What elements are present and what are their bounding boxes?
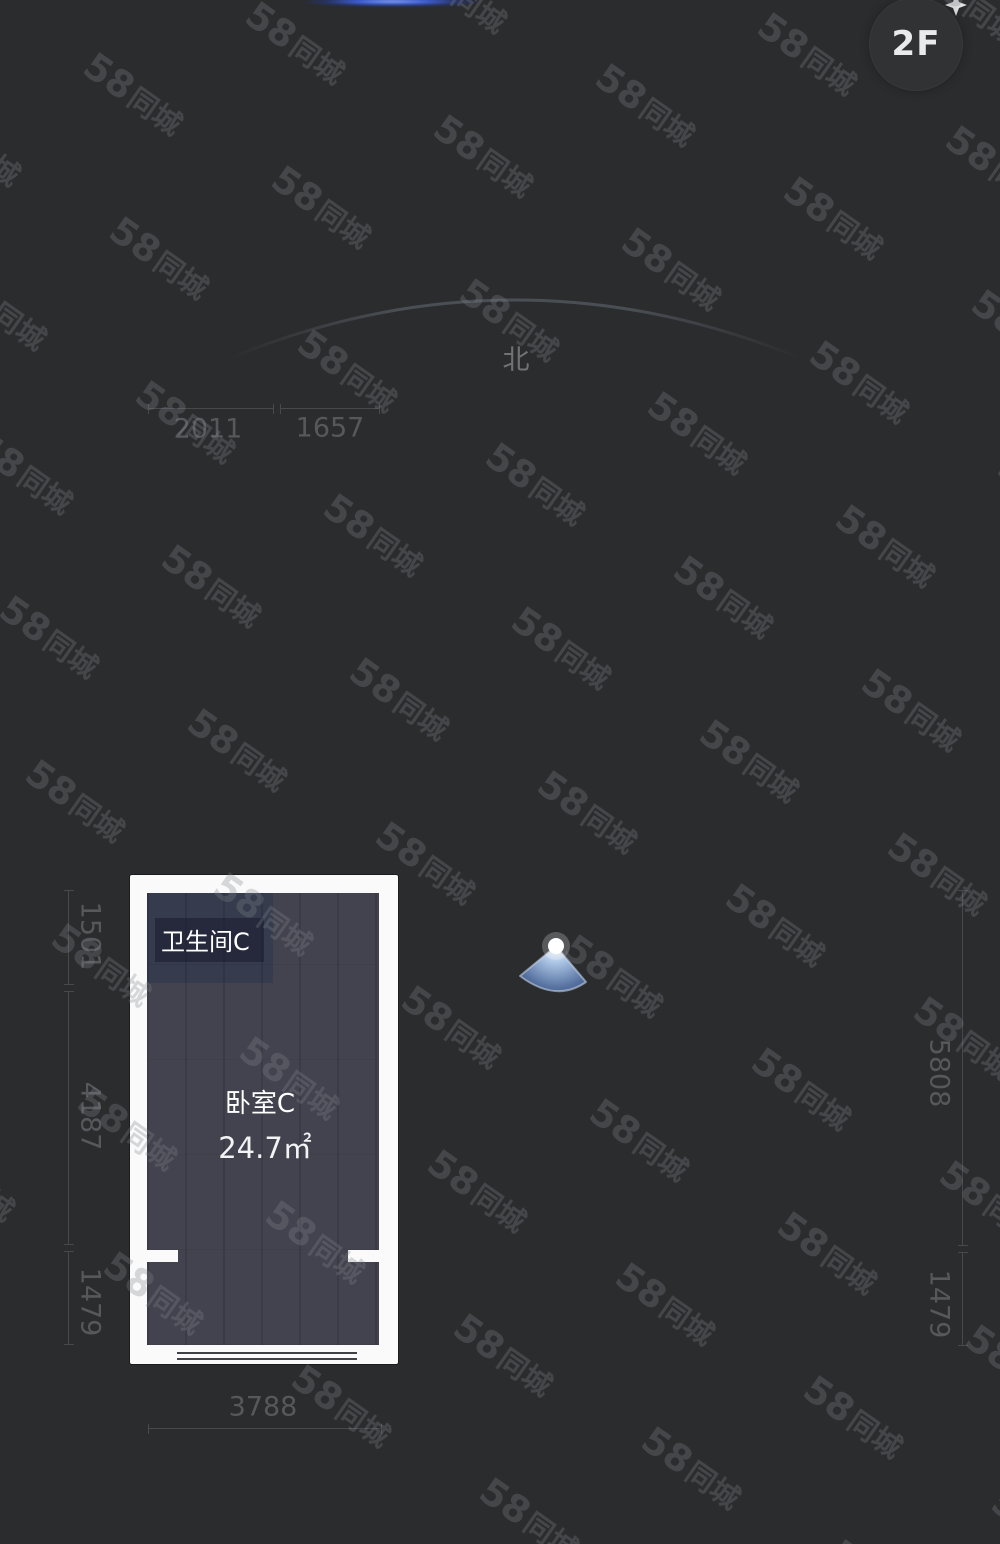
room-floor: 卫生间C 卧室C 24.7㎡ xyxy=(147,893,379,1345)
watermark-text: 58同城 xyxy=(0,590,107,685)
watermark-text: 58同城 xyxy=(965,284,1000,379)
watermark-text: 58同城 xyxy=(615,222,728,317)
dimension-label: 1479 xyxy=(75,1268,106,1337)
watermark-text: 58同城 xyxy=(609,1257,722,1352)
watermark-text: 58同城 xyxy=(181,703,294,798)
room-area-value: 24.7㎡ xyxy=(218,1125,312,1167)
watermark-text: 58同城 xyxy=(505,601,618,696)
dimension-line xyxy=(148,1428,382,1429)
dimension-line xyxy=(962,890,963,1246)
watermark-text: 58同城 xyxy=(531,765,644,860)
watermark-text: 58同城 xyxy=(881,827,994,922)
dimension-line xyxy=(962,1252,963,1346)
watermark-text: 58同城 xyxy=(933,1155,1000,1250)
dimension-label: 4187 xyxy=(75,1082,106,1151)
watermark-text: 58同城 xyxy=(317,488,430,583)
dimension-label: 2011 xyxy=(174,414,243,445)
dimension-line xyxy=(148,408,274,409)
dimension-line xyxy=(280,408,380,409)
watermark-text: 58同城 xyxy=(0,426,81,521)
watermark-text: 58同城 xyxy=(343,652,456,747)
window-line xyxy=(177,1352,357,1354)
watermark-text: 58同城 xyxy=(641,386,754,481)
watermark-text: 58同城 xyxy=(0,98,29,193)
watermark-text: 58同城 xyxy=(557,929,670,1024)
watermark-text: 58同城 xyxy=(803,335,916,430)
watermark-text: 58同城 xyxy=(155,539,268,634)
watermark-text: 58同城 xyxy=(991,448,1000,543)
watermark-text: 58同城 xyxy=(239,0,352,90)
watermark-text: 58同城 xyxy=(745,1042,858,1137)
room-label-bathroom: 卫生间C xyxy=(155,918,264,962)
watermark-text: 58同城 xyxy=(19,754,132,849)
watermark-text: 58同城 xyxy=(823,1534,936,1544)
watermark-text: 58同城 xyxy=(771,1206,884,1301)
watermark-text: 58同城 xyxy=(751,7,864,102)
floorplan-viewer-screen: 2F 北 2011 1657 1501 4187 1479 5808 1479 … xyxy=(0,0,1000,1544)
north-label: 北 xyxy=(503,338,530,377)
watermark-text: 58同城 xyxy=(0,262,55,357)
dimension-label: 1479 xyxy=(924,1270,955,1339)
watermark-text: 58同城 xyxy=(291,324,404,419)
dimension-line xyxy=(68,1251,69,1345)
watermark-text: 58同城 xyxy=(427,109,540,204)
camera-cone-icon xyxy=(520,932,586,991)
watermark-text: 58同城 xyxy=(0,0,3,28)
room-bedroom-c[interactable]: 卫生间C 卧室C 24.7㎡ xyxy=(130,875,398,1364)
floor-badge-label: 2F xyxy=(892,24,941,64)
watermark-text: 58同城 xyxy=(939,120,1000,215)
watermark-text: 58同城 xyxy=(829,499,942,594)
dimension-label: 3788 xyxy=(229,1392,298,1423)
dimension-line xyxy=(68,890,69,985)
watermark-text: 58同城 xyxy=(479,437,592,532)
watermark-text: 58同城 xyxy=(985,1483,1000,1544)
watermark-text: 58同城 xyxy=(583,1093,696,1188)
watermark-text: 58同城 xyxy=(693,714,806,809)
watermark-text: 58同城 xyxy=(855,663,968,758)
floor-badge-2f[interactable]: 2F xyxy=(869,0,963,91)
watermark-text: 58同城 xyxy=(589,58,702,153)
watermark-text: 58同城 xyxy=(667,550,780,645)
watermark-text: 58同城 xyxy=(635,1421,748,1516)
watermark-text: 58同城 xyxy=(77,47,190,142)
watermark-text: 58同城 xyxy=(959,1319,1000,1414)
wall-stub-right xyxy=(348,1250,379,1262)
watermark-text: 58同城 xyxy=(473,1472,586,1544)
watermark-text: 58同城 xyxy=(265,160,378,255)
dimension-label: 1657 xyxy=(296,413,365,444)
watermark-text: 58同城 xyxy=(103,211,216,306)
watermark-text: 58同城 xyxy=(421,1144,534,1239)
watermark-text: 58同城 xyxy=(719,878,832,973)
dimension-line xyxy=(68,991,69,1245)
window-line xyxy=(177,1358,357,1360)
watermark-text: 58同城 xyxy=(0,1133,23,1228)
wall-stub-left xyxy=(147,1250,178,1262)
dimension-label: 1501 xyxy=(75,902,106,971)
watermark-text: 58同城 xyxy=(777,171,890,266)
watermark-text: 58同城 xyxy=(797,1370,910,1465)
room-label-bedroom: 卧室C xyxy=(225,1083,295,1120)
model-edge-glow xyxy=(305,0,480,7)
watermark-text: 58同城 xyxy=(285,1359,398,1454)
watermark-text: 58同城 xyxy=(447,1308,560,1403)
dimension-label: 5808 xyxy=(924,1039,955,1108)
watermark-text: 58同城 xyxy=(395,980,508,1075)
